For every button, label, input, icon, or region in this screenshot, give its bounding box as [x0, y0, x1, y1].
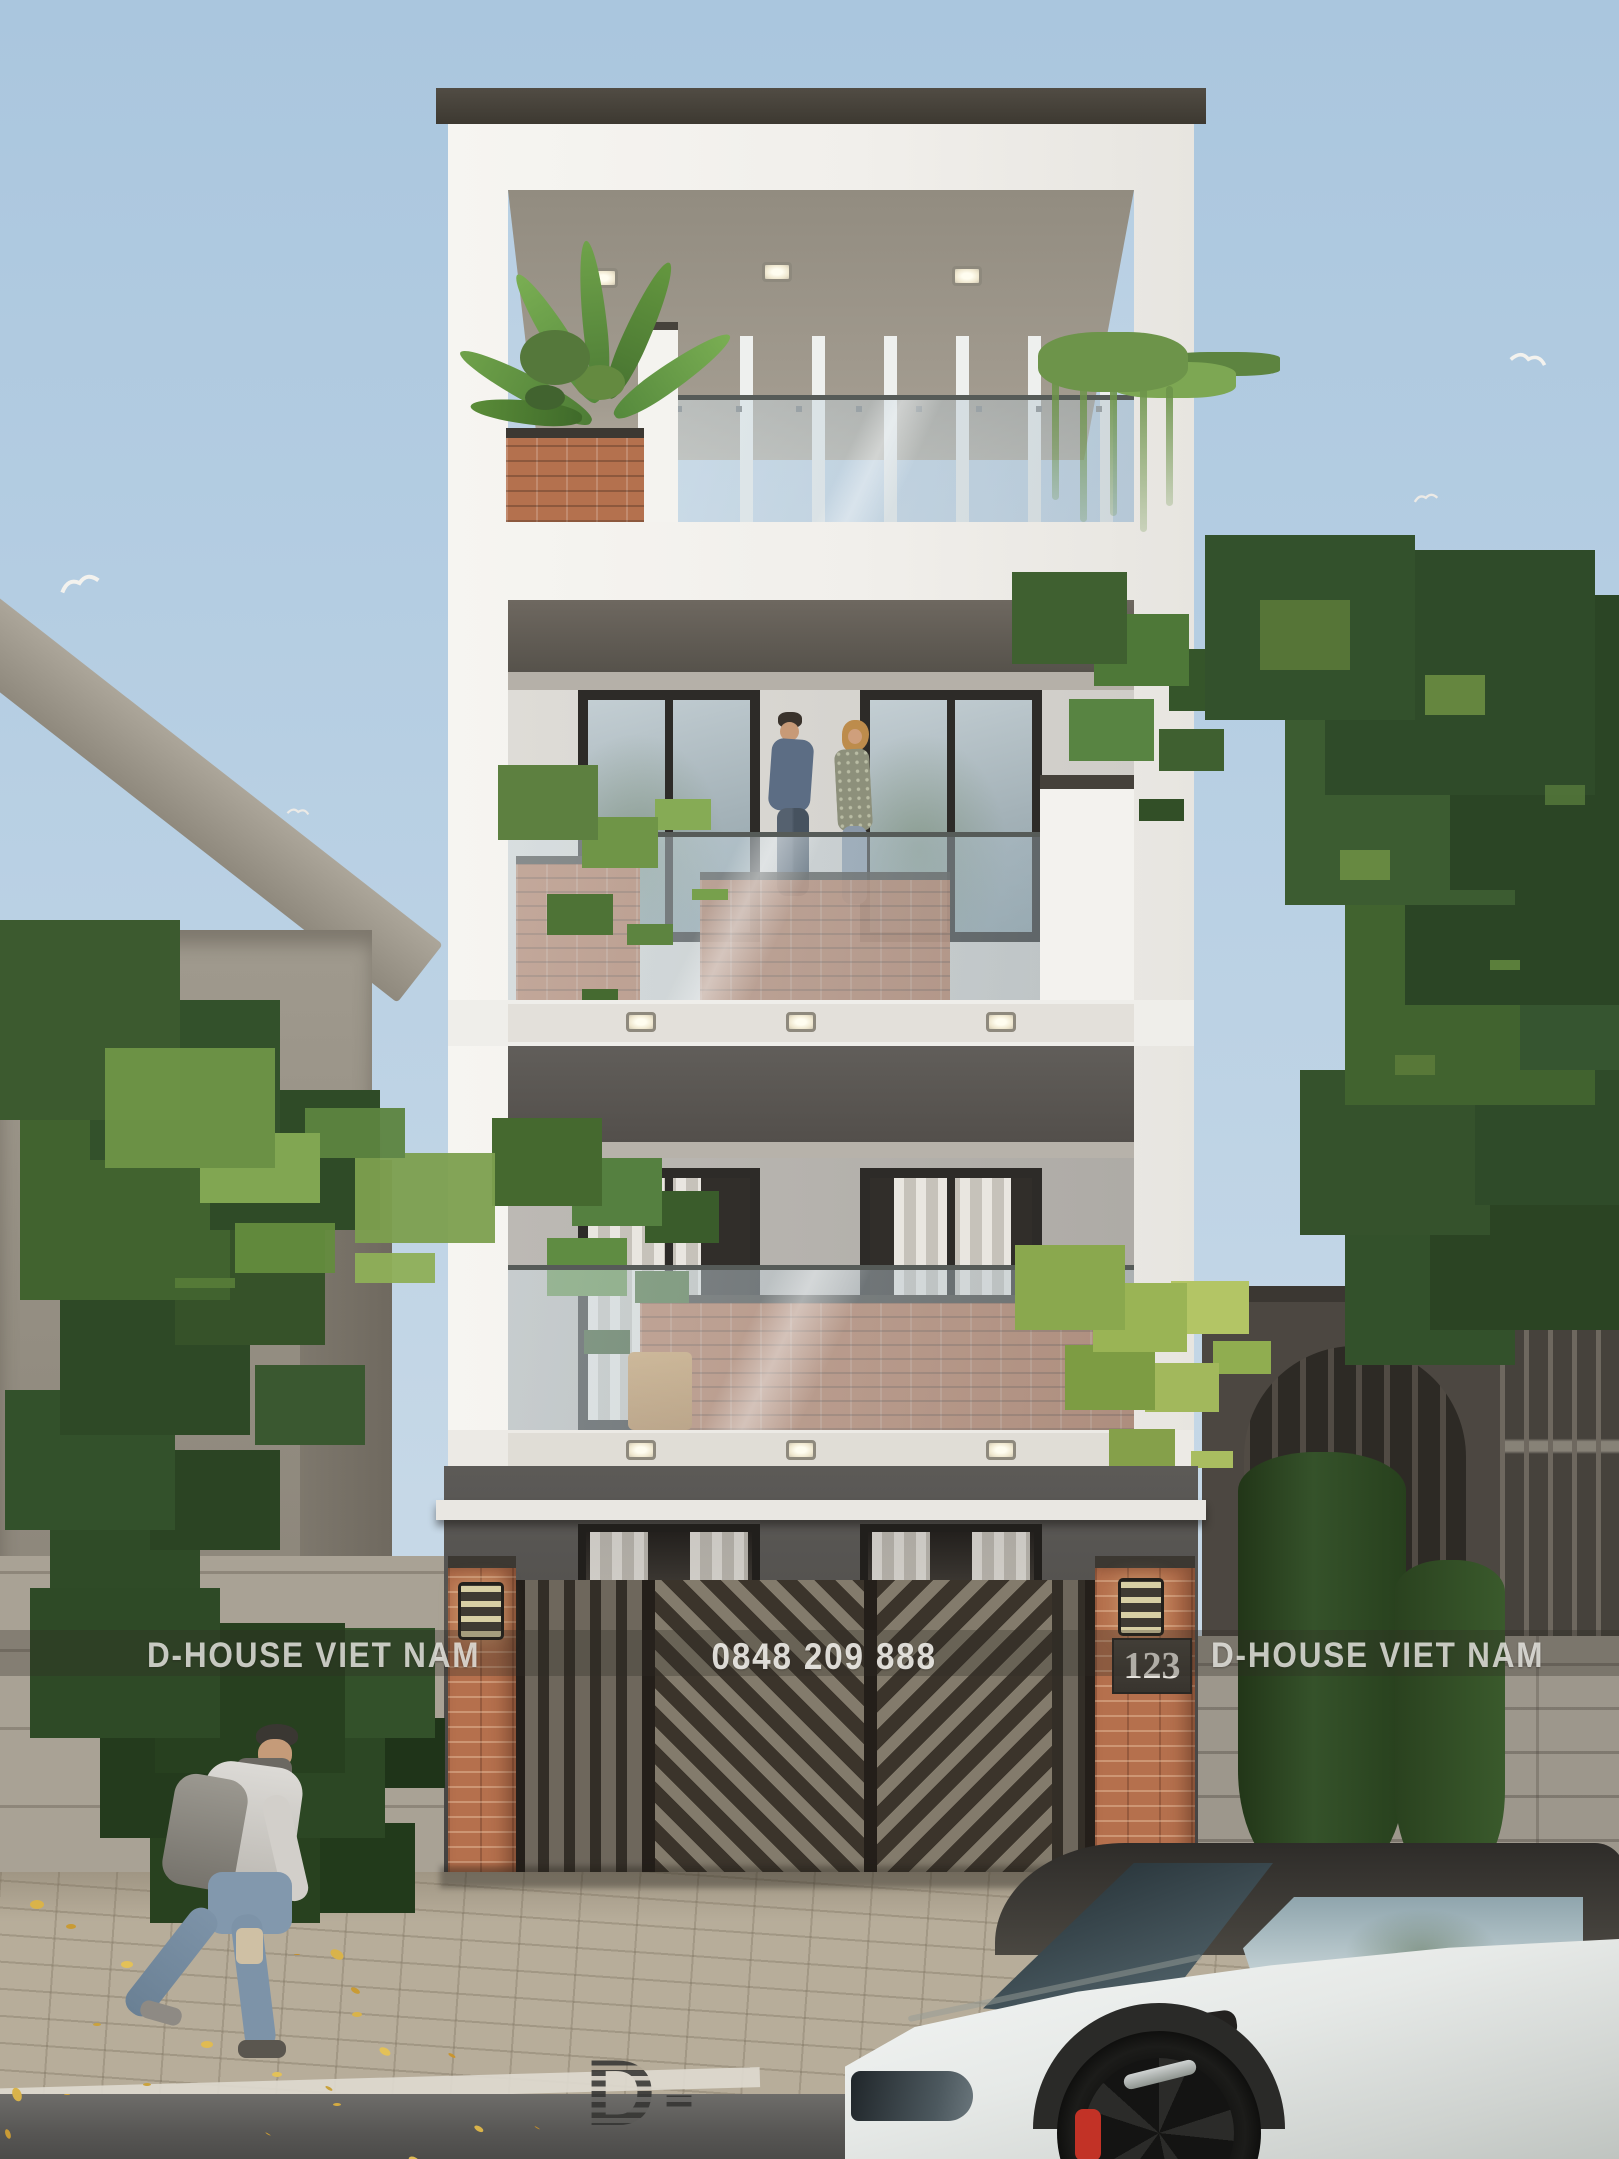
tree-foliage-right-highlight [1260, 600, 1350, 670]
rooftop-plant-highlight [520, 330, 590, 385]
downlight [626, 1440, 656, 1460]
curtain [872, 1532, 930, 1580]
pedestrian-walking-man [140, 1722, 350, 2058]
ground-floor-white-ledge [436, 1500, 1206, 1520]
yellow-green-hanging-shrub [1015, 1245, 1125, 1330]
fiddle-leaf-plant-floor3 [1012, 572, 1127, 664]
floor3-white-volume [1040, 775, 1134, 1005]
woman-dress [834, 748, 873, 832]
right-neighbor-tower-cap [1538, 842, 1619, 872]
downlight [786, 1012, 816, 1032]
floor3-glass-railing [508, 832, 1040, 1005]
floor3-light-strip [508, 672, 1134, 690]
downlight [952, 266, 982, 286]
railing-clamps [676, 406, 1134, 412]
man-torso [768, 738, 815, 813]
shoe-back [138, 1999, 183, 2028]
woman-face [848, 729, 862, 744]
vine-strand [1110, 384, 1117, 516]
curtain [690, 1532, 748, 1580]
gate-door-leaf-left [648, 1580, 870, 1872]
right-neighbor-tower [1548, 842, 1619, 1312]
wall-lamp-right [1118, 1578, 1164, 1636]
bird-icon [1412, 490, 1440, 508]
watermark-phone: 0848 209 888 [712, 1636, 919, 1672]
gate-post [642, 1580, 655, 1872]
balcony-soffit [508, 1004, 1134, 1042]
downlight [986, 1012, 1016, 1032]
dhouse-logo-watermark: D-HOUSE [585, 2044, 1085, 2150]
vine-strand [1080, 372, 1087, 522]
floor3-hanging-ivy [498, 765, 598, 840]
downlight [786, 1440, 816, 1460]
rooftop-hanging-plant [1038, 332, 1188, 392]
watermark-left: D-HOUSE VIET NAM [147, 1636, 417, 1672]
downlight [762, 262, 792, 282]
curtain [590, 1532, 648, 1580]
fiddle-leaf-plant-floor2 [492, 1118, 602, 1206]
main-metal-gate [512, 1580, 1098, 1872]
cargo-pocket [236, 1928, 263, 1964]
balcony-soffit [508, 1433, 1134, 1467]
ground-window-left [578, 1524, 760, 1588]
downlight [986, 1440, 1016, 1460]
right-neighbor-metal-fence [1500, 1330, 1619, 1640]
downlight [626, 1012, 656, 1032]
gate-post [864, 1580, 877, 1872]
roof-coping [436, 88, 1206, 124]
conifer-tree-small [1395, 1560, 1505, 1880]
gate-vertical-bars-left [512, 1580, 644, 1872]
overhanging-branches-left [105, 1048, 275, 1168]
shoe-front [238, 2040, 286, 2058]
vine-strand [1140, 376, 1147, 532]
rooftop-glass-railing [676, 395, 1134, 522]
watermark-right: D-HOUSE VIET NAM [1211, 1636, 1481, 1672]
architectural-render-scene: 123 [0, 0, 1619, 2159]
fallen-leaves [30, 1900, 44, 1909]
vine-strand [1052, 380, 1059, 500]
curtain [972, 1532, 1030, 1580]
vine-strand [1166, 386, 1173, 506]
ground-window-right [860, 1524, 1042, 1588]
